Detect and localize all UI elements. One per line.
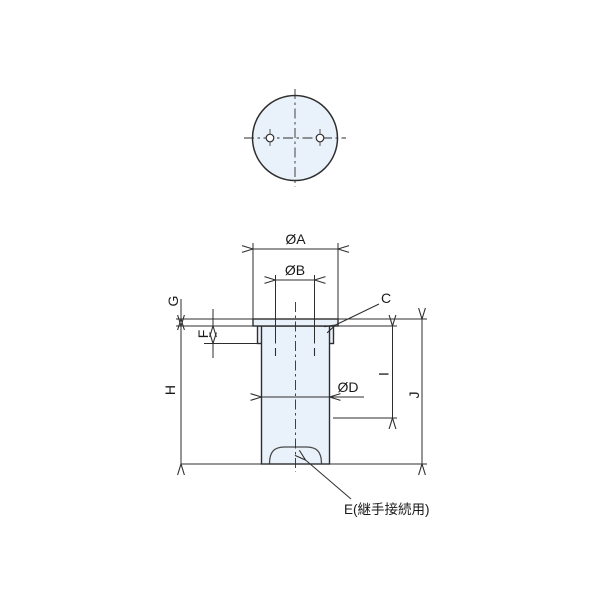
label-g: G bbox=[165, 296, 181, 307]
label-f: F bbox=[195, 330, 211, 339]
mounting-hole-right bbox=[316, 134, 324, 142]
technical-drawing-canvas: ØA ØB ØD C E(継手接続用) G F H I J bbox=[0, 0, 600, 600]
label-dia-d: ØD bbox=[338, 379, 359, 395]
mounting-hole-left bbox=[266, 134, 274, 142]
label-i: I bbox=[376, 372, 392, 376]
label-e-connection-note: E(継手接続用) bbox=[344, 501, 430, 517]
socket-fitting-drawing: ØA ØB ØD C E(継手接続用) G F H I J bbox=[0, 0, 600, 600]
front-view bbox=[253, 302, 338, 472]
label-j: J bbox=[406, 392, 422, 399]
leader-line-c bbox=[336, 304, 380, 325]
top-view bbox=[244, 89, 346, 187]
label-dia-b: ØB bbox=[285, 262, 305, 278]
label-c: C bbox=[381, 290, 391, 306]
leader-line-e bbox=[306, 460, 352, 499]
label-dia-a: ØA bbox=[285, 231, 306, 247]
label-h: H bbox=[162, 385, 178, 395]
